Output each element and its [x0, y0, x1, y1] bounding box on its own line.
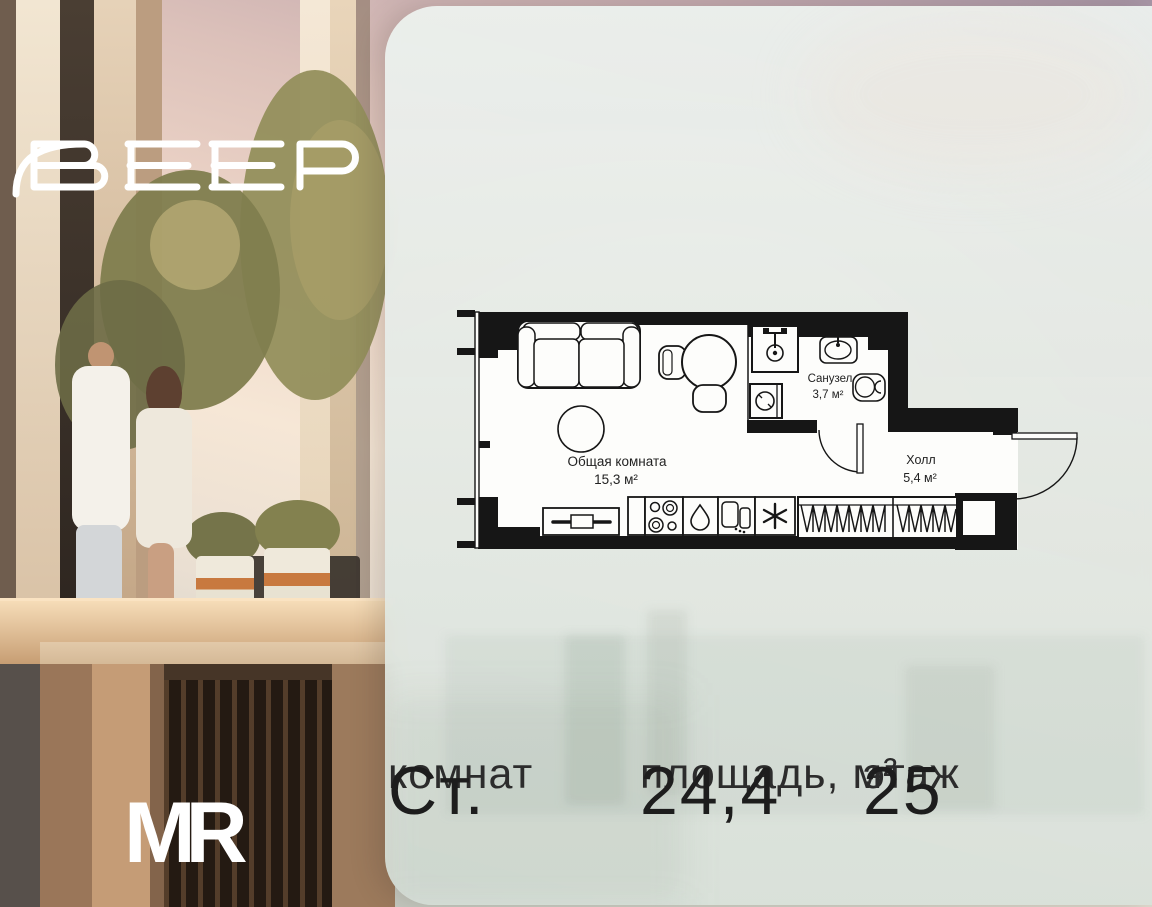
floor-plan: Общая комната 15,3 м² Санузел 3,7 м² Хол…: [450, 295, 1135, 565]
shower-basin: [752, 326, 798, 372]
room-label-hall: Холл: [906, 453, 935, 467]
room-label-bathroom: Санузел: [808, 373, 853, 385]
summary-value-rooms: Ст.: [388, 757, 486, 825]
room-area-living: 15,3 м²: [594, 472, 638, 487]
listing-card: ВЕЕР MR: [0, 0, 1152, 907]
window-facade: [475, 312, 479, 548]
entry-door: [1012, 433, 1077, 499]
sofa: [518, 321, 640, 388]
summary-value-area: 24,4: [640, 757, 780, 825]
room-label-living: Общая комната: [568, 454, 667, 469]
toilet: [853, 374, 885, 401]
coffee-table: [558, 406, 604, 452]
couple-woman: [136, 408, 192, 548]
washing-machine: [750, 384, 782, 418]
console-table: [543, 508, 619, 535]
brand-logo-glyphs: [8, 128, 388, 208]
shaft-niche: [962, 500, 996, 536]
summary-col-floor: этаж 25: [863, 752, 1152, 892]
summary-value-floor: 25: [863, 757, 943, 825]
developer-logo-mr: MR: [124, 790, 284, 890]
room-area-hall: 5,4 м²: [903, 471, 937, 485]
couple-man: [72, 366, 130, 531]
brand-logo-veer: ВЕЕР: [8, 128, 388, 208]
logo-letter-e: [212, 144, 281, 187]
facade-stripe: [0, 0, 16, 645]
facade-stripe: [16, 0, 60, 622]
wardrobe: [798, 497, 957, 538]
room-area-bathroom: 3,7 м²: [813, 389, 844, 401]
tree-foliage-highlight: [150, 200, 240, 290]
floor-plan-drawing: Общая комната 15,3 м² Санузел 3,7 м² Хол…: [450, 295, 1135, 565]
logo-letter-e: [128, 144, 197, 187]
logo-letter-r: [300, 144, 356, 187]
panel-sky-haze: [805, 12, 1145, 177]
